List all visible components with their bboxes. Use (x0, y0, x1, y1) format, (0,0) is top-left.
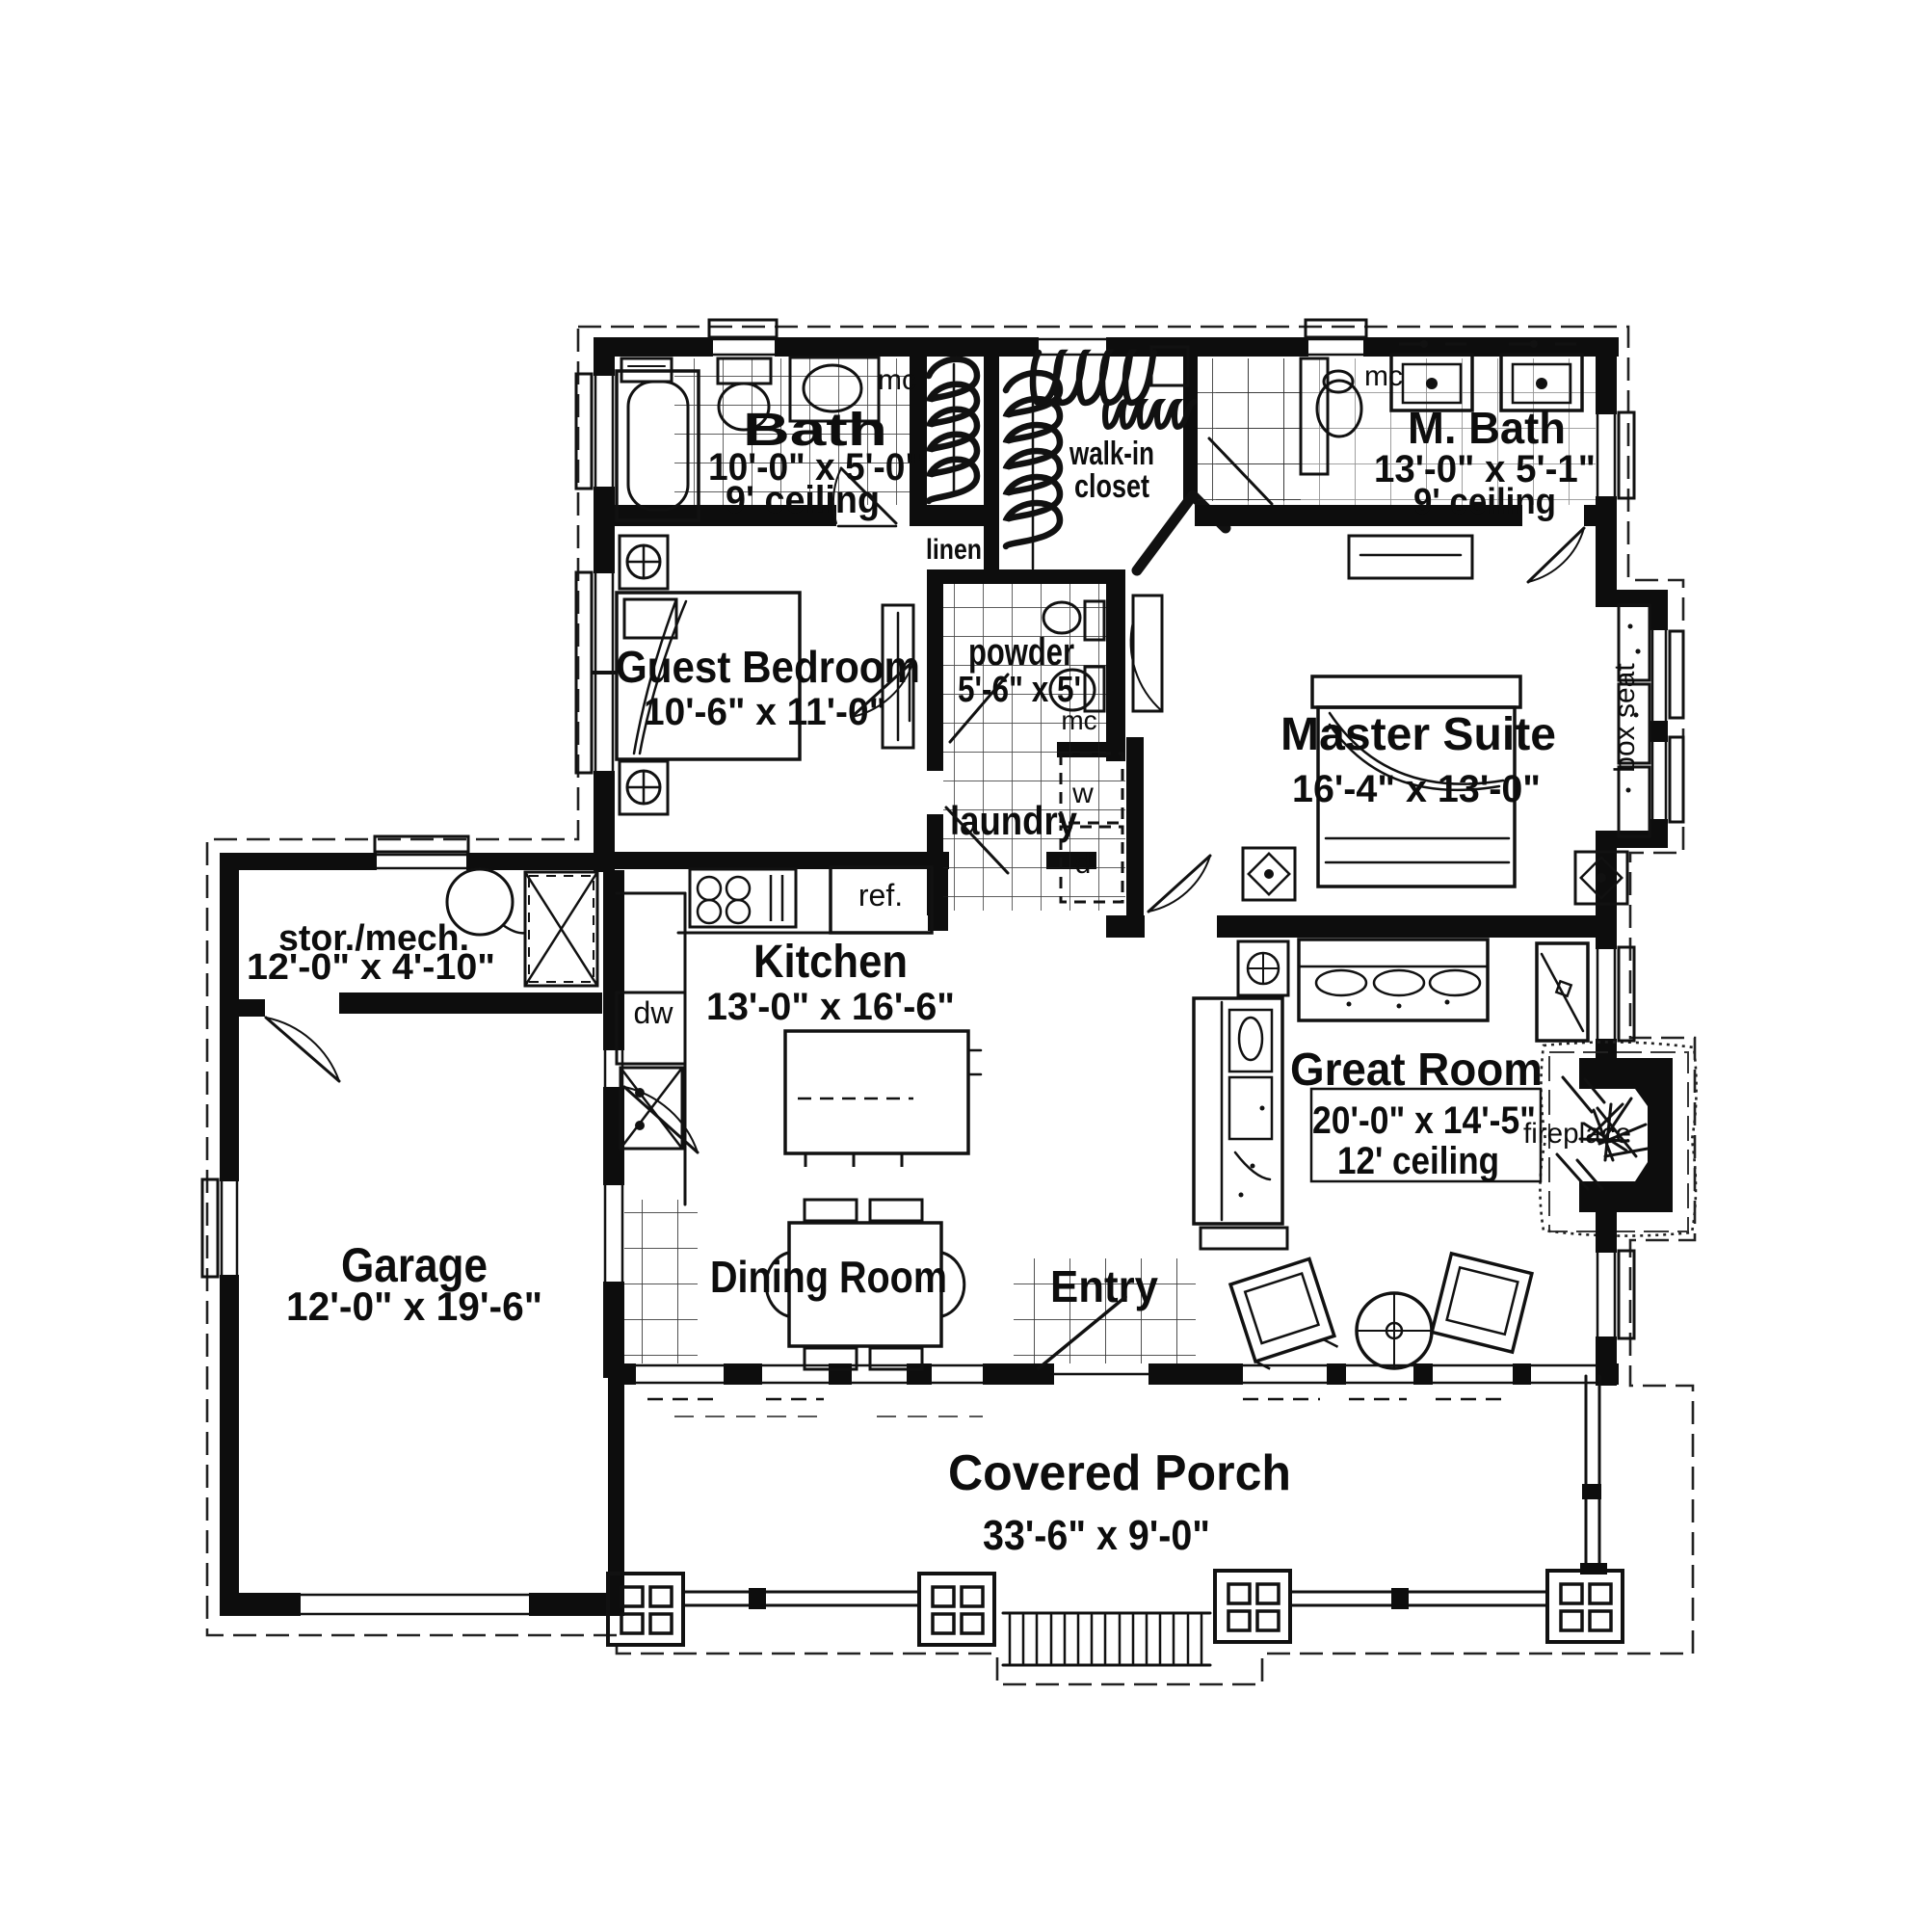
svg-text:20'-0" x 14'-5": 20'-0" x 14'-5" (1312, 1099, 1536, 1142)
svg-text:box seat: box seat (1609, 663, 1641, 773)
svg-text:ref.: ref. (858, 878, 903, 913)
svg-text:12'-0" x 19'-6": 12'-0" x 19'-6" (286, 1284, 542, 1329)
svg-text:Kitchen: Kitchen (753, 937, 908, 988)
svg-text:linen: linen (926, 534, 982, 566)
svg-text:16'-4" x 13'-0": 16'-4" x 13'-0" (1292, 768, 1541, 810)
svg-text:33'-6" x 9'-0": 33'-6" x 9'-0" (983, 1512, 1210, 1559)
svg-text:mc: mc (1364, 360, 1403, 392)
svg-text:12'-0" x 4'-10": 12'-0" x 4'-10" (247, 947, 495, 988)
svg-text:Dining Room: Dining Room (710, 1252, 947, 1302)
svg-text:Covered Porch: Covered Porch (948, 1445, 1291, 1501)
svg-text:mc: mc (878, 364, 916, 396)
svg-text:9' ceiling: 9' ceiling (1413, 482, 1556, 522)
svg-text:mc: mc (1061, 705, 1096, 735)
svg-text:12' ceiling: 12' ceiling (1337, 1140, 1499, 1182)
svg-text:Entry: Entry (1050, 1261, 1158, 1311)
svg-text:closet: closet (1074, 468, 1149, 505)
svg-text:10'-6" x 11'-0": 10'-6" x 11'-0" (644, 691, 886, 733)
svg-text:d: d (1075, 848, 1092, 880)
svg-text:5'-6" x 5': 5'-6" x 5' (958, 670, 1081, 710)
svg-text:w: w (1071, 778, 1094, 809)
svg-text:walk-in: walk-in (1069, 436, 1154, 472)
svg-text:powder: powder (968, 631, 1074, 674)
svg-text:Guest Bedroom: Guest Bedroom (616, 642, 920, 692)
svg-text:laundry: laundry (950, 798, 1078, 843)
svg-text:M. Bath: M. Bath (1408, 403, 1566, 453)
svg-text:dw: dw (634, 995, 674, 1030)
svg-text:Master Suite: Master Suite (1280, 709, 1556, 760)
svg-text:13'-0" x 16'-6": 13'-0" x 16'-6" (706, 986, 955, 1028)
